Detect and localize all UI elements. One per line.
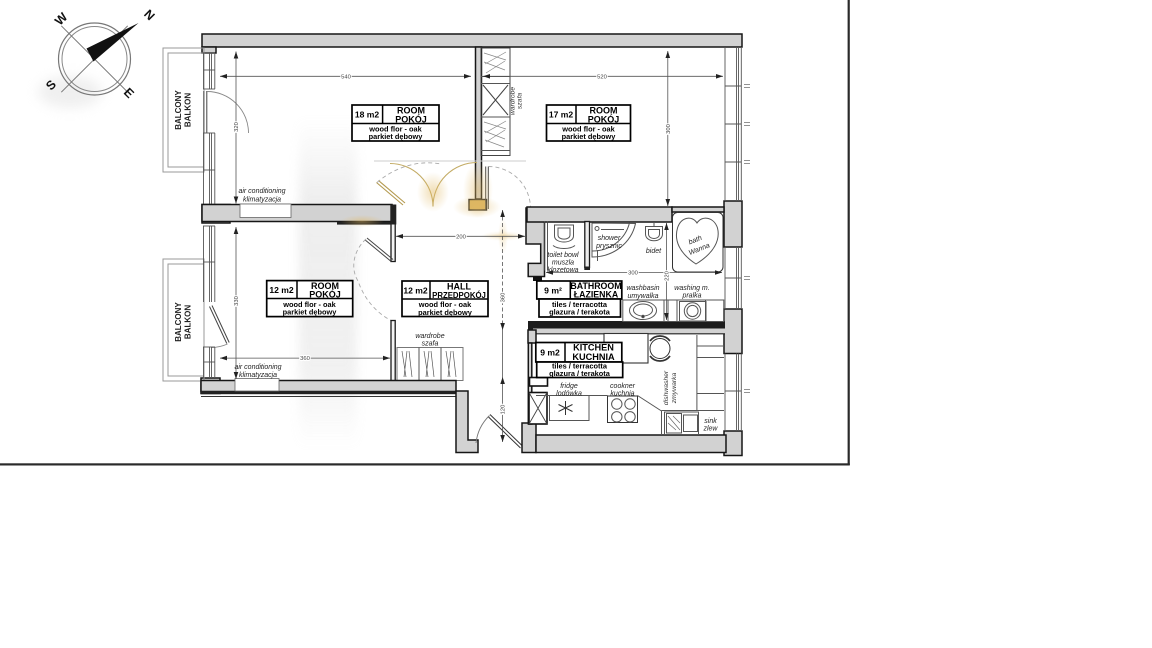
svg-text:9 m²: 9 m² [544, 286, 562, 296]
svg-text:washing m.: washing m. [674, 285, 709, 292]
svg-text:540: 540 [341, 74, 351, 80]
svg-text:glazura / terakota: glazura / terakota [549, 369, 611, 378]
svg-text:pralka: pralka [681, 293, 701, 300]
svg-text:zlew: zlew [702, 426, 718, 433]
svg-text:BALKON: BALKON [184, 305, 193, 339]
svg-text:parkiet dębowy: parkiet dębowy [283, 308, 338, 317]
svg-text:120: 120 [501, 405, 507, 415]
svg-text:HALL: HALL [447, 282, 471, 292]
svg-text:POKÓJ: POKÓJ [309, 289, 341, 300]
svg-text:220: 220 [665, 271, 671, 281]
svg-text:ŁAZIENKA: ŁAZIENKA [574, 290, 619, 300]
svg-text:lodówka: lodówka [556, 391, 582, 398]
svg-text:parkiet dębowy: parkiet dębowy [369, 132, 424, 141]
svg-text:wardrobe: wardrobe [415, 333, 444, 340]
svg-text:prysznic: prysznic [595, 243, 622, 250]
svg-text:bidet: bidet [646, 248, 662, 255]
svg-text:klimatyzacja: klimatyzacja [243, 197, 281, 204]
svg-text:12 m2: 12 m2 [269, 285, 294, 295]
svg-text:klozetowa: klozetowa [547, 267, 578, 274]
svg-text:300: 300 [628, 271, 638, 277]
svg-text:POKÓJ: POKÓJ [395, 113, 427, 124]
svg-text:300: 300 [666, 124, 672, 134]
svg-text:air conditioning: air conditioning [238, 188, 285, 195]
svg-text:PRZEDPOKÓJ: PRZEDPOKÓJ [432, 291, 486, 300]
svg-text:BALCONY: BALCONY [174, 90, 183, 130]
svg-text:12 m2: 12 m2 [403, 286, 428, 296]
svg-text:fridge: fridge [560, 383, 578, 390]
svg-text:KUCHNIA: KUCHNIA [572, 352, 615, 362]
svg-text:wardrobe: wardrobe [510, 87, 517, 116]
svg-text:sink: sink [704, 418, 717, 425]
svg-text:muszla: muszla [552, 260, 574, 267]
svg-text:umywalka: umywalka [627, 293, 658, 300]
svg-text:330: 330 [234, 296, 240, 306]
svg-text:parkiet dębowy: parkiet dębowy [562, 132, 617, 141]
svg-text:shower: shower [598, 235, 621, 242]
svg-text:BALCONY: BALCONY [174, 302, 183, 342]
svg-text:360: 360 [501, 293, 507, 303]
svg-text:dishwasher: dishwasher [663, 370, 670, 405]
svg-text:szafa: szafa [517, 93, 524, 109]
svg-text:glazura / terakota: glazura / terakota [549, 308, 611, 317]
svg-text:zmywarka: zmywarka [671, 372, 678, 404]
svg-text:klimatyzacja: klimatyzacja [239, 372, 277, 379]
svg-text:200: 200 [456, 234, 466, 240]
svg-text:air conditioning: air conditioning [234, 364, 281, 371]
svg-text:parkiet dębowy: parkiet dębowy [418, 308, 473, 317]
svg-text:POKÓJ: POKÓJ [588, 113, 620, 124]
svg-text:szafa: szafa [422, 341, 439, 348]
svg-text:BALKON: BALKON [184, 93, 193, 127]
svg-text:kuchnia: kuchnia [610, 391, 634, 398]
svg-text:washbasin: washbasin [626, 285, 659, 292]
svg-text:520: 520 [597, 74, 607, 80]
svg-text:9 m2: 9 m2 [540, 348, 560, 358]
svg-text:cookner: cookner [610, 383, 636, 390]
svg-text:toilet bowl: toilet bowl [547, 252, 579, 259]
svg-text:18 m2: 18 m2 [355, 110, 380, 120]
svg-text:320: 320 [234, 122, 240, 132]
svg-text:360: 360 [300, 356, 310, 362]
svg-text:17 m2: 17 m2 [549, 110, 574, 120]
